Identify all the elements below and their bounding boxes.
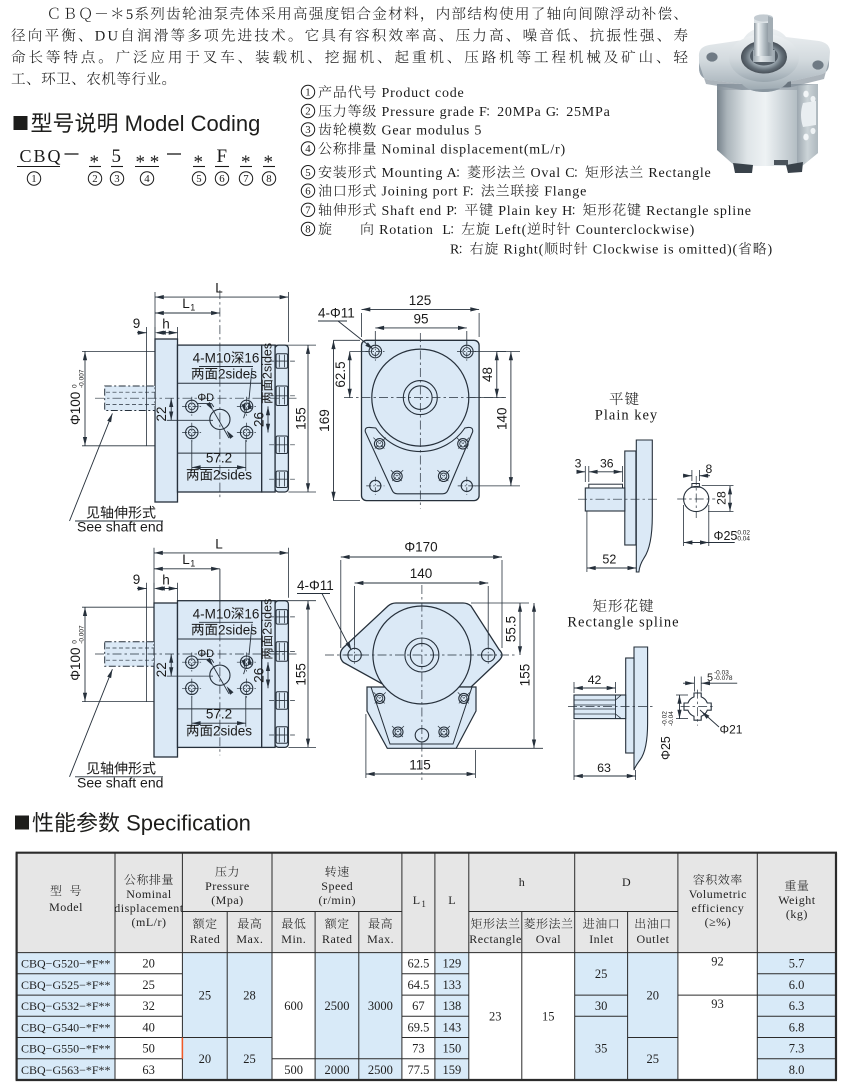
svg-text:22: 22 bbox=[154, 406, 169, 421]
svg-text:*: * bbox=[264, 152, 274, 173]
svg-text:1: 1 bbox=[190, 558, 195, 568]
svg-text:40: 40 bbox=[142, 1020, 155, 1034]
svg-text:150: 150 bbox=[443, 1042, 462, 1056]
svg-text:L: L bbox=[215, 281, 223, 296]
svg-text:26: 26 bbox=[252, 412, 267, 427]
svg-text:9: 9 bbox=[133, 316, 141, 331]
svg-text:Φ100: Φ100 bbox=[68, 648, 83, 681]
svg-text:5: 5 bbox=[112, 146, 122, 167]
svg-text:h: h bbox=[162, 317, 170, 332]
svg-text:L: L bbox=[448, 893, 456, 907]
svg-text:* *: * * bbox=[136, 152, 160, 173]
svg-text:4-M10: 4-M10 bbox=[193, 606, 231, 621]
svg-text:h: h bbox=[162, 572, 170, 587]
svg-text:155: 155 bbox=[294, 663, 309, 686]
svg-text:3000: 3000 bbox=[368, 999, 393, 1013]
svg-text:159: 159 bbox=[443, 1063, 462, 1077]
svg-text:5: 5 bbox=[126, 7, 135, 23]
svg-text:8: 8 bbox=[706, 462, 713, 476]
svg-text:2sides: 2sides bbox=[213, 723, 252, 738]
svg-text:R: R bbox=[450, 243, 460, 258]
svg-text:Φ25: Φ25 bbox=[714, 529, 738, 543]
svg-text:Flange: Flange bbox=[540, 185, 587, 200]
svg-text:3: 3 bbox=[305, 124, 310, 136]
svg-text:(≥%): (≥%) bbox=[705, 915, 732, 929]
svg-text:(mL/r): (mL/r) bbox=[132, 915, 167, 929]
svg-text:7.3: 7.3 bbox=[789, 1042, 805, 1056]
svg-text:25MPa: 25MPa bbox=[566, 105, 610, 120]
svg-text:2: 2 bbox=[92, 173, 97, 185]
svg-text:8: 8 bbox=[305, 224, 310, 236]
svg-text:3: 3 bbox=[114, 173, 119, 185]
svg-text:1: 1 bbox=[305, 87, 310, 99]
svg-text:Φ170: Φ170 bbox=[404, 540, 437, 555]
svg-text:4-Φ11: 4-Φ11 bbox=[318, 306, 355, 321]
svg-text:0: 0 bbox=[72, 640, 79, 644]
svg-text:DU: DU bbox=[95, 29, 120, 45]
svg-text:Gear modulus 5: Gear modulus 5 bbox=[377, 123, 482, 138]
svg-text:5: 5 bbox=[707, 672, 713, 684]
svg-text:-0.04: -0.04 bbox=[735, 536, 750, 543]
svg-text:95: 95 bbox=[414, 312, 429, 327]
svg-text:5: 5 bbox=[305, 167, 310, 179]
svg-text:6: 6 bbox=[305, 185, 311, 197]
svg-text:7: 7 bbox=[305, 205, 311, 217]
svg-text:2500: 2500 bbox=[325, 999, 350, 1013]
svg-text:ΦD: ΦD bbox=[197, 392, 214, 404]
svg-text:57.2: 57.2 bbox=[206, 451, 232, 466]
svg-text:63: 63 bbox=[142, 1063, 155, 1077]
svg-text:20: 20 bbox=[199, 1052, 212, 1066]
svg-text:h: h bbox=[519, 875, 526, 889]
svg-text:23: 23 bbox=[489, 1010, 502, 1024]
svg-text:20: 20 bbox=[142, 957, 155, 971]
svg-text:25: 25 bbox=[199, 989, 212, 1003]
svg-text:CBQ−G563−*F**: CBQ−G563−*F** bbox=[21, 1063, 111, 1077]
svg-text:(Mpa): (Mpa) bbox=[211, 893, 244, 907]
svg-text:3: 3 bbox=[575, 457, 582, 471]
svg-text:L: L bbox=[215, 536, 223, 551]
svg-text:Mounting A: Mounting A bbox=[377, 166, 457, 181]
svg-text:Max.: Max. bbox=[367, 932, 394, 946]
svg-text:Nominal: Nominal bbox=[126, 887, 172, 901]
svg-text:2000: 2000 bbox=[325, 1063, 350, 1077]
svg-text:52: 52 bbox=[602, 553, 616, 567]
svg-text:Rectangle spline: Rectangle spline bbox=[642, 204, 752, 219]
svg-text:25: 25 bbox=[595, 967, 608, 981]
svg-text:*: * bbox=[241, 152, 251, 173]
svg-text:5: 5 bbox=[196, 173, 201, 185]
svg-text:Min.: Min. bbox=[281, 932, 306, 946]
svg-text:Nominal displacement(mL/r): Nominal displacement(mL/r) bbox=[377, 143, 566, 158]
svg-text:129: 129 bbox=[443, 957, 462, 971]
svg-text:Outlet: Outlet bbox=[637, 932, 670, 946]
svg-text:169: 169 bbox=[317, 409, 332, 432]
svg-text:133: 133 bbox=[443, 978, 462, 992]
svg-text:2sides: 2sides bbox=[213, 468, 252, 483]
svg-text:92: 92 bbox=[711, 955, 724, 969]
svg-text:7: 7 bbox=[243, 173, 249, 185]
svg-text:62.5: 62.5 bbox=[408, 957, 430, 971]
svg-text:Model: Model bbox=[49, 900, 83, 914]
svg-text:Rectangle: Rectangle bbox=[469, 932, 521, 946]
svg-text:8: 8 bbox=[266, 173, 271, 185]
svg-text:Rated: Rated bbox=[190, 932, 221, 946]
svg-text:Left(: Left( bbox=[491, 223, 527, 238]
svg-text:5.7: 5.7 bbox=[789, 957, 805, 971]
svg-text:28: 28 bbox=[243, 989, 256, 1003]
svg-text:9: 9 bbox=[133, 572, 141, 587]
svg-text:6.8: 6.8 bbox=[789, 1020, 805, 1034]
svg-text:140: 140 bbox=[410, 566, 433, 581]
svg-text:125: 125 bbox=[409, 293, 432, 308]
svg-text:Plain key: Plain key bbox=[595, 408, 658, 424]
svg-text:L: L bbox=[182, 552, 190, 567]
svg-text:115: 115 bbox=[409, 758, 431, 773]
svg-text:Rectangle: Rectangle bbox=[644, 166, 711, 181]
svg-text:0: 0 bbox=[72, 384, 79, 388]
svg-text:155: 155 bbox=[518, 664, 533, 687]
svg-text:F: F bbox=[217, 146, 228, 167]
svg-text:36: 36 bbox=[600, 457, 614, 471]
svg-text:ΦD: ΦD bbox=[197, 648, 214, 660]
svg-text:2sides: 2sides bbox=[261, 599, 275, 635]
svg-text:Inlet: Inlet bbox=[589, 932, 614, 946]
svg-text:Max.: Max. bbox=[236, 932, 263, 946]
svg-text:4: 4 bbox=[144, 173, 150, 185]
svg-text:500: 500 bbox=[284, 1063, 303, 1077]
svg-text:*: * bbox=[194, 152, 204, 173]
svg-text:2500: 2500 bbox=[368, 1063, 393, 1077]
svg-text:2sides: 2sides bbox=[261, 343, 275, 379]
svg-text:Speed: Speed bbox=[321, 879, 353, 893]
svg-text:6: 6 bbox=[219, 173, 225, 185]
svg-text:26: 26 bbox=[252, 668, 267, 683]
svg-text:57.2: 57.2 bbox=[206, 706, 232, 721]
svg-text:20MPa G: 20MPa G bbox=[497, 105, 557, 120]
svg-text:67: 67 bbox=[412, 999, 425, 1013]
svg-text:25: 25 bbox=[142, 978, 155, 992]
svg-text:140: 140 bbox=[495, 407, 510, 430]
svg-text:16: 16 bbox=[244, 606, 259, 621]
svg-text:4-Φ11: 4-Φ11 bbox=[297, 578, 334, 593]
svg-text:1: 1 bbox=[190, 303, 195, 313]
svg-text:63: 63 bbox=[597, 761, 611, 775]
svg-text:Counterclockwise): Counterclockwise) bbox=[571, 223, 695, 238]
svg-text:8.0: 8.0 bbox=[789, 1063, 805, 1077]
svg-text:22: 22 bbox=[154, 662, 169, 677]
svg-text:64.5: 64.5 bbox=[408, 978, 430, 992]
svg-text:4: 4 bbox=[305, 143, 311, 155]
svg-text:15: 15 bbox=[542, 1010, 555, 1024]
svg-text:62.5: 62.5 bbox=[333, 361, 348, 387]
svg-text:CBQ−G525−*F**: CBQ−G525−*F** bbox=[21, 978, 111, 992]
svg-text:displacement: displacement bbox=[114, 901, 183, 915]
svg-text:42: 42 bbox=[588, 673, 602, 687]
svg-text:efficiency: efficiency bbox=[692, 901, 745, 915]
svg-text:Model Coding: Model Coding bbox=[119, 111, 261, 136]
svg-text:Rated: Rated bbox=[322, 932, 353, 946]
svg-text:Pressure: Pressure bbox=[205, 879, 250, 893]
svg-text:16: 16 bbox=[244, 351, 259, 366]
svg-text:28: 28 bbox=[715, 491, 729, 505]
svg-text:Rotation L: Rotation L bbox=[375, 223, 452, 238]
svg-text:Volumetric: Volumetric bbox=[689, 887, 747, 901]
svg-text:(r/min): (r/min) bbox=[319, 893, 357, 907]
svg-text:Right(: Right( bbox=[499, 243, 544, 258]
svg-text:155: 155 bbox=[294, 407, 309, 430]
svg-text:6.0: 6.0 bbox=[789, 978, 805, 992]
svg-text:Plain key H: Plain key H bbox=[494, 204, 573, 219]
svg-text:25: 25 bbox=[243, 1052, 256, 1066]
svg-text:35: 35 bbox=[595, 1042, 608, 1056]
svg-text:Rectangle spline: Rectangle spline bbox=[567, 615, 679, 631]
svg-text:143: 143 bbox=[443, 1020, 462, 1034]
svg-text:25: 25 bbox=[647, 1052, 660, 1066]
svg-text:): ) bbox=[768, 243, 773, 258]
svg-text:(kg): (kg) bbox=[786, 907, 808, 921]
svg-text:*: * bbox=[90, 152, 100, 173]
svg-text:4-M10: 4-M10 bbox=[193, 351, 231, 366]
svg-text:Φ21: Φ21 bbox=[720, 723, 743, 737]
svg-text:Specification: Specification bbox=[120, 811, 251, 836]
svg-text:Weight: Weight bbox=[778, 893, 816, 907]
svg-text:Φ100: Φ100 bbox=[68, 392, 83, 425]
svg-text:6.3: 6.3 bbox=[789, 999, 805, 1013]
svg-text:55.5: 55.5 bbox=[504, 616, 519, 642]
svg-text:Shaft end P: Shaft end P bbox=[377, 204, 455, 219]
svg-text:138: 138 bbox=[443, 999, 462, 1013]
svg-text:Φ25: Φ25 bbox=[659, 736, 673, 760]
svg-text:Clockwise is omitted)(: Clockwise is omitted)( bbox=[589, 243, 738, 258]
svg-text:50: 50 bbox=[142, 1042, 155, 1056]
svg-text:-0.007: -0.007 bbox=[79, 625, 86, 644]
svg-text:CBQ−G550−*F**: CBQ−G550−*F** bbox=[21, 1042, 111, 1056]
svg-text:69.5: 69.5 bbox=[408, 1020, 430, 1034]
svg-text:-0.078: -0.078 bbox=[714, 675, 733, 682]
svg-text:48: 48 bbox=[480, 367, 495, 382]
svg-text:Joining port F: Joining port F bbox=[377, 185, 471, 200]
svg-text:77.5: 77.5 bbox=[408, 1063, 430, 1077]
svg-text:D: D bbox=[622, 875, 631, 889]
svg-text:1: 1 bbox=[31, 173, 36, 185]
svg-text:93: 93 bbox=[711, 997, 724, 1011]
svg-text:CBQ−G532−*F**: CBQ−G532−*F** bbox=[21, 999, 111, 1013]
svg-text:73: 73 bbox=[412, 1042, 425, 1056]
svg-text:Oval C: Oval C bbox=[526, 166, 575, 181]
svg-text:CBQ−G540−*F**: CBQ−G540−*F** bbox=[21, 1020, 111, 1034]
svg-text:Pressure grade F: Pressure grade F bbox=[377, 105, 487, 120]
svg-text:20: 20 bbox=[647, 989, 660, 1003]
svg-text:600: 600 bbox=[284, 999, 303, 1013]
svg-text:30: 30 bbox=[595, 999, 608, 1013]
svg-text:CBQ−G520−*F**: CBQ−G520−*F** bbox=[21, 957, 111, 971]
svg-text:32: 32 bbox=[142, 999, 155, 1013]
svg-text:Oval: Oval bbox=[536, 932, 561, 946]
svg-text:Product code: Product code bbox=[377, 86, 464, 101]
svg-text:2: 2 bbox=[305, 106, 310, 118]
svg-text:CBQ: CBQ bbox=[20, 146, 63, 166]
svg-text:1: 1 bbox=[421, 899, 426, 909]
svg-text:-0.04: -0.04 bbox=[668, 711, 675, 726]
svg-text:L: L bbox=[413, 893, 421, 907]
svg-text:L: L bbox=[182, 296, 190, 311]
svg-text:-0.007: -0.007 bbox=[79, 369, 86, 388]
